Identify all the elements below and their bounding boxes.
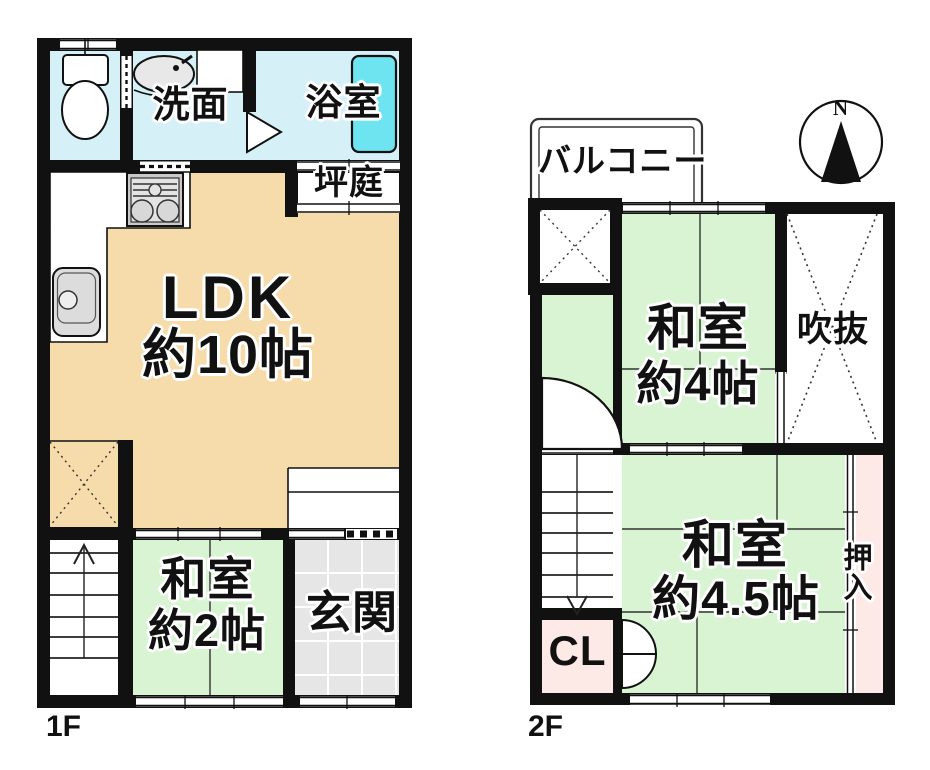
label-compass-north: N xyxy=(826,98,856,119)
label-washitsu45-name: 和室 xyxy=(645,520,825,572)
label-washitsu45-size: 約4.5帖 xyxy=(630,576,842,624)
label-washitsu2-name: 和室 xyxy=(130,556,285,602)
label-fukinuke: 吹抜 xyxy=(783,312,883,347)
label-balcony: バルコニー xyxy=(538,144,698,177)
label-washitsu2-size: 約2帖 xyxy=(126,608,288,653)
label-genkan: 玄関 xyxy=(296,590,408,635)
hatch-xbox-2f xyxy=(540,210,610,283)
floorplan-canvas: 洗面 浴室 坪庭 LDK 約10帖 和室 約2帖 玄関 1F バルコニー 和室 … xyxy=(0,0,930,770)
label-floor-2f: 2F xyxy=(528,712,598,742)
stairs-2f xyxy=(542,455,613,614)
label-ldk-size: 約10帖 xyxy=(88,328,368,382)
label-cl: CL xyxy=(540,630,615,672)
label-senmen: 洗面 xyxy=(133,86,248,123)
label-floor-1f: 1F xyxy=(46,712,116,742)
label-ldk-name: LDK xyxy=(108,268,348,328)
label-oshiire: 押入 xyxy=(840,524,869,619)
room-hall-2f xyxy=(542,293,613,449)
label-washitsu4-name: 和室 xyxy=(618,303,778,353)
xbox-2f-inner xyxy=(540,210,610,283)
label-washitsu4-size: 約4帖 xyxy=(606,360,790,407)
label-tsuboniwa: 坪庭 xyxy=(300,166,398,200)
stairs-1f xyxy=(50,545,118,658)
label-bathroom: 浴室 xyxy=(286,84,401,121)
